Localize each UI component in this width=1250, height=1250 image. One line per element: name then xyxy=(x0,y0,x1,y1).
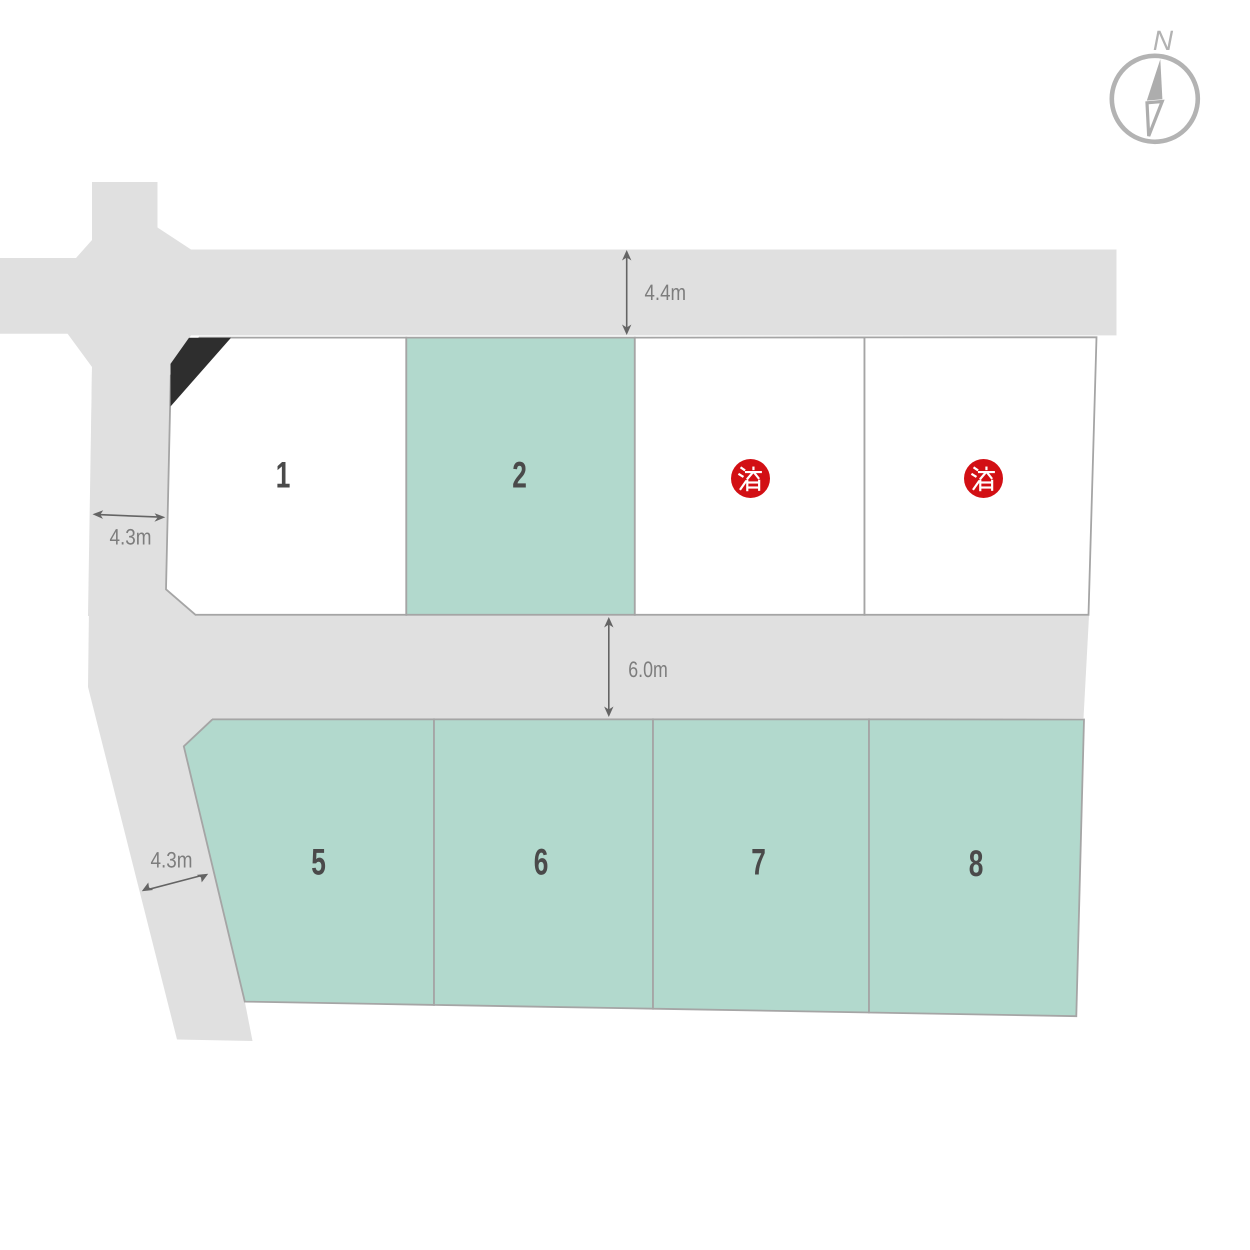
svg-text:N: N xyxy=(1153,25,1174,56)
svg-text:5: 5 xyxy=(311,841,326,882)
svg-text:6: 6 xyxy=(534,841,549,882)
svg-text:4.3m: 4.3m xyxy=(110,525,152,550)
svg-text:6.0m: 6.0m xyxy=(628,657,668,682)
svg-text:7: 7 xyxy=(751,841,766,882)
svg-text:8: 8 xyxy=(969,843,984,884)
svg-text:1: 1 xyxy=(276,455,291,496)
svg-text:4.3m: 4.3m xyxy=(151,848,193,873)
svg-text:4.4m: 4.4m xyxy=(645,280,687,305)
svg-text:2: 2 xyxy=(512,455,527,496)
